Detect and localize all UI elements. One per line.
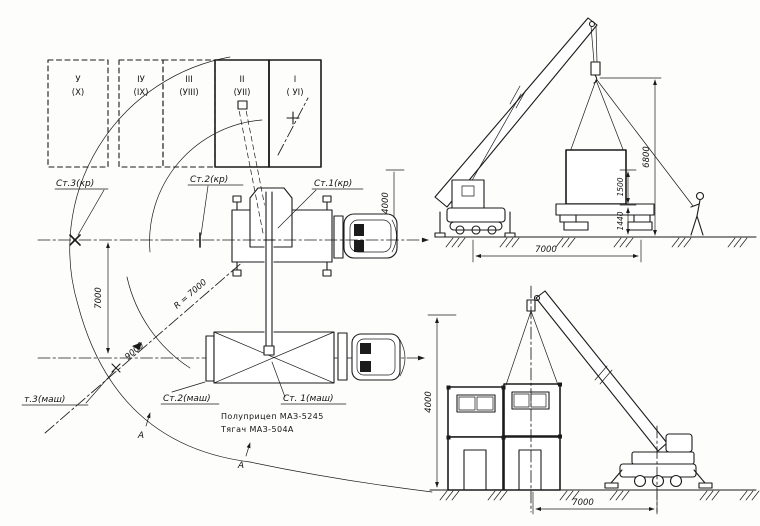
hook-plan: [264, 346, 274, 355]
tractor-caption: Тягач МАЗ-504А: [220, 425, 294, 434]
axes-distance-dimension: 7000: [94, 243, 108, 353]
panel-load: [556, 80, 654, 230]
trailer-rear: [206, 336, 214, 381]
panel-sublabel: (IX): [134, 88, 149, 98]
radius-label: 7000: [535, 245, 557, 255]
elevation-erection: 4000 7000: [424, 286, 759, 514]
boom-current-position: [264, 192, 274, 355]
station-machine-2-label: Ст.2(маш): [163, 394, 211, 404]
vehicle-caption: Полуприцеп МАЗ-5245 Тягач МАЗ-504А: [220, 412, 324, 434]
pick-position-mark: [278, 98, 308, 155]
section-marker-a1: А: [137, 431, 144, 441]
section-markers: А А: [137, 413, 250, 471]
sling-line: [531, 311, 558, 385]
outrigger-right: [694, 470, 712, 488]
lower-panel-mid: [504, 437, 560, 490]
panel-sublabel: (УIII): [179, 88, 198, 98]
outrigger-left: [605, 470, 622, 488]
elevation-loading: 6800 1500 1440 7000: [435, 18, 756, 262]
building: [447, 383, 563, 491]
tractor-cab-plan: [352, 334, 405, 380]
station-machine-1-label: Ст. 1(маш): [283, 394, 334, 404]
panel-sublabel: (X): [72, 88, 84, 98]
outrigger-right: [505, 212, 515, 237]
crane-body: [447, 208, 505, 222]
semitrailer-caption: Полуприцеп МАЗ-5245: [221, 412, 324, 421]
radius-label: 7000: [572, 498, 594, 508]
panel-label: IУ: [137, 75, 146, 85]
panel-grid: У (X) IУ (IX) III (УIII) II (УII) I ( УI…: [48, 60, 321, 167]
semitrailer-plan: [206, 332, 405, 383]
panel-sublabel: (УII): [234, 88, 251, 98]
panel-label: У: [75, 75, 81, 85]
station-crane-2-label: Ст.2(кр): [190, 175, 228, 185]
hook-height-label: 6800: [642, 146, 652, 168]
station-crane-1-label: Ст.1(кр): [314, 179, 352, 189]
station-machine-3-label: т.3(маш): [24, 395, 65, 405]
gap-label: 1500: [616, 177, 625, 196]
height-label: 4000: [424, 391, 434, 413]
rigger-head: [697, 193, 704, 200]
crane-operation-drawing: У (X) IУ (IX) III (УIII) II (УII) I ( УI…: [0, 0, 760, 526]
ground-hatching: [440, 491, 759, 500]
plan-view: У (X) IУ (IX) III (УIII) II (УII) I ( УI…: [22, 57, 432, 492]
truck-cab-plan: [334, 214, 397, 258]
trailer-platform: [556, 204, 654, 215]
panel-label: II: [239, 75, 244, 85]
drawing-sheet: У (X) IУ (IX) III (УIII) II (УII) I ( УI…: [0, 0, 760, 526]
erection-crane: [535, 291, 713, 512]
sling-line: [570, 80, 596, 152]
outrigger-left: [435, 212, 445, 237]
axes-distance-label: 7000: [94, 287, 104, 309]
hook-block: [591, 62, 600, 75]
crane-cab: [452, 180, 484, 208]
sling-line: [506, 311, 531, 385]
radius-label: R = 7000: [172, 278, 209, 312]
panel-sublabel: ( УI): [286, 88, 303, 98]
luffing-cable: [470, 94, 521, 184]
ground-hatching: [446, 238, 747, 247]
crane-cab: [666, 434, 692, 452]
panel-label: III: [185, 75, 193, 85]
kingpin-plate: [338, 333, 347, 380]
offset-dim-label: 9000: [123, 341, 146, 363]
station-crane-3-label: Ст.3(кр): [56, 179, 94, 189]
panel-label: I: [294, 75, 297, 85]
lower-panel-left: [448, 437, 503, 490]
platform-height-label: 1440: [616, 211, 625, 230]
section-marker-a2: А: [237, 461, 244, 471]
crane-turret: [632, 452, 694, 464]
sling-line: [596, 80, 624, 152]
clearance-label: 4000: [381, 192, 391, 214]
